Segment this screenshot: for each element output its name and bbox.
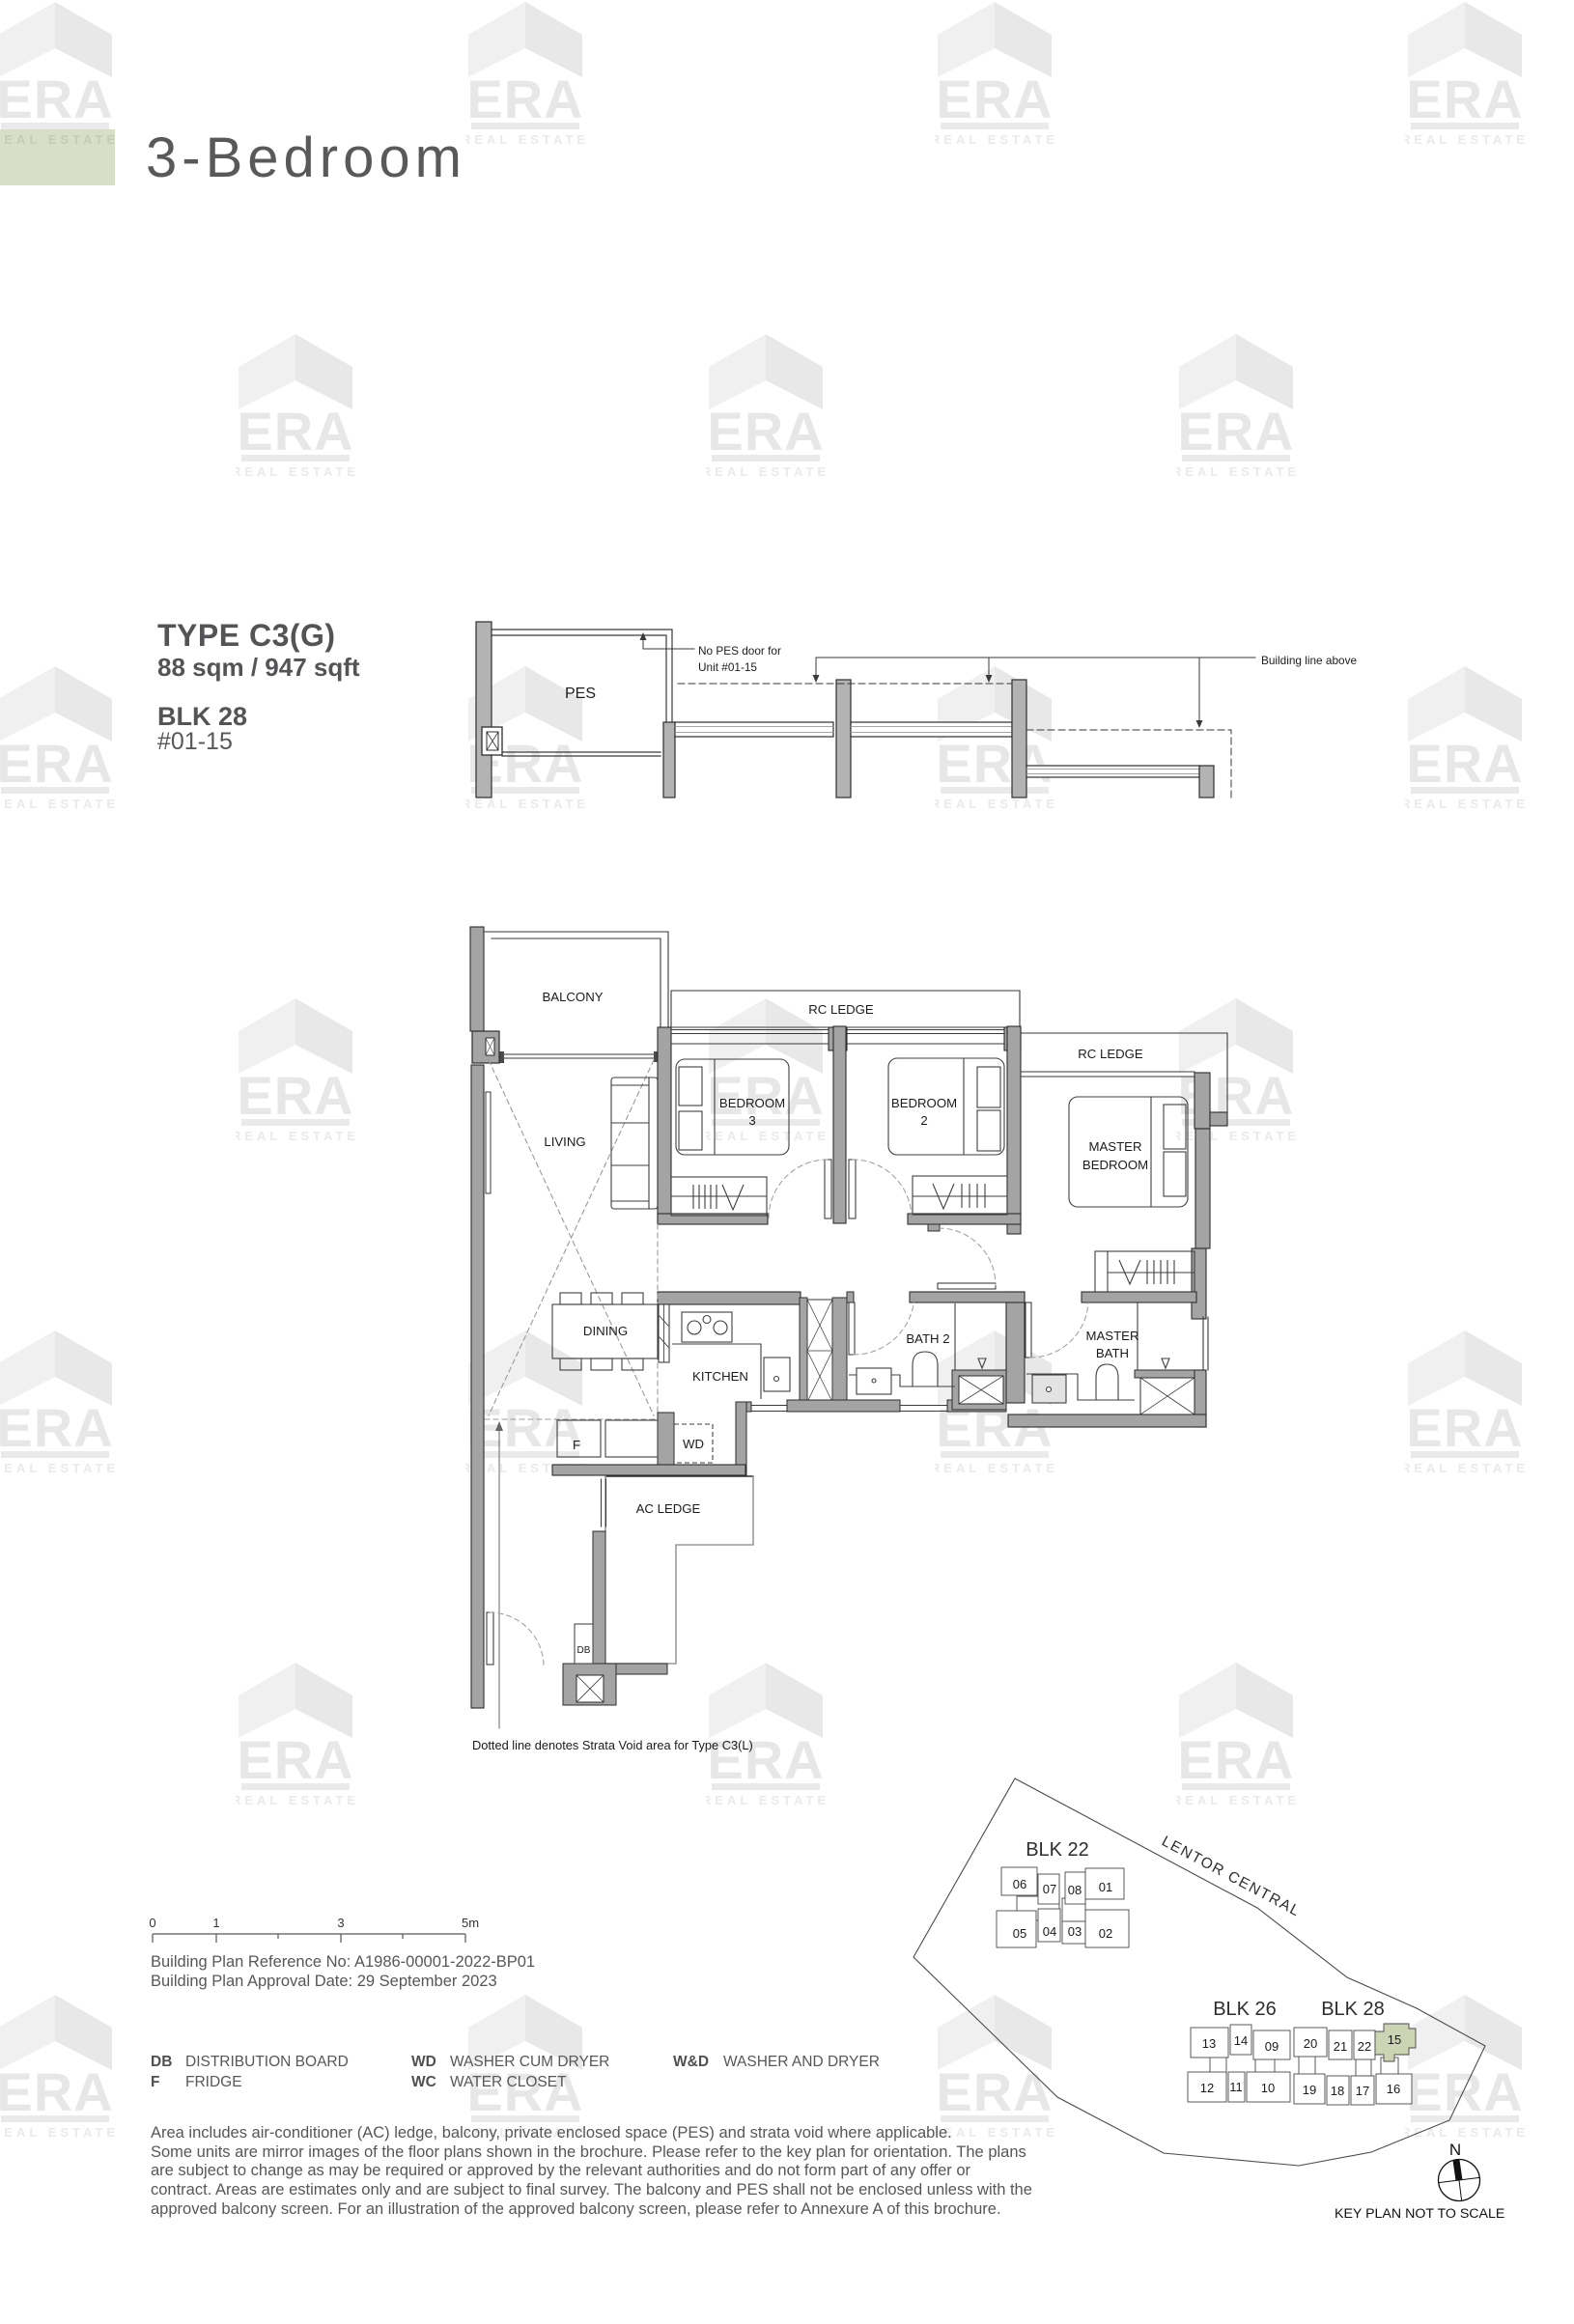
svg-text:RC LEDGE: RC LEDGE: [1078, 1047, 1143, 1061]
svg-text:BEDROOM: BEDROOM: [719, 1096, 785, 1110]
svg-text:BLK 26: BLK 26: [1213, 1999, 1277, 2020]
svg-text:No PES door for: No PES door for: [698, 644, 781, 658]
svg-text:1: 1: [212, 1916, 219, 1930]
svg-text:04: 04: [1043, 1924, 1056, 1939]
svg-text:13: 13: [1202, 2036, 1216, 2051]
svg-text:BALCONY: BALCONY: [542, 990, 603, 1004]
svg-text:15: 15: [1388, 2032, 1401, 2047]
svg-text:AC LEDGE: AC LEDGE: [636, 1501, 701, 1516]
svg-text:BATH 2: BATH 2: [906, 1331, 949, 1346]
svg-text:BLK 22: BLK 22: [1026, 1839, 1089, 1861]
svg-text:19: 19: [1303, 2083, 1316, 2097]
svg-text:WD: WD: [683, 1437, 704, 1451]
svg-text:MASTER: MASTER: [1086, 1329, 1139, 1343]
svg-text:12: 12: [1200, 2081, 1214, 2095]
svg-text:5m: 5m: [462, 1916, 479, 1930]
svg-text:LENTOR CENTRAL: LENTOR CENTRAL: [1159, 1834, 1303, 1920]
svg-text:DB: DB: [577, 1645, 591, 1656]
svg-text:06: 06: [1013, 1877, 1026, 1891]
svg-text:BEDROOM: BEDROOM: [1082, 1158, 1148, 1172]
svg-text:07: 07: [1043, 1882, 1056, 1896]
svg-text:10: 10: [1261, 2081, 1275, 2095]
svg-text:21: 21: [1334, 2039, 1347, 2054]
svg-text:02: 02: [1099, 1926, 1112, 1941]
svg-text:3: 3: [748, 1113, 755, 1128]
svg-text:14: 14: [1234, 2033, 1248, 2048]
svg-text:KEY PLAN NOT TO SCALE: KEY PLAN NOT TO SCALE: [1335, 2206, 1504, 2222]
svg-text:MASTER: MASTER: [1089, 1139, 1142, 1154]
svg-text:BEDROOM: BEDROOM: [891, 1096, 957, 1110]
svg-text:05: 05: [1013, 1926, 1026, 1941]
svg-text:BATH: BATH: [1096, 1346, 1129, 1360]
svg-text:01: 01: [1099, 1880, 1112, 1894]
svg-text:2: 2: [920, 1113, 927, 1128]
svg-text:16: 16: [1387, 2082, 1400, 2096]
svg-text:11: 11: [1229, 2080, 1243, 2094]
svg-text:F: F: [573, 1438, 580, 1452]
svg-text:09: 09: [1265, 2039, 1279, 2054]
svg-text:Building line above: Building line above: [1261, 654, 1357, 667]
svg-text:20: 20: [1304, 2036, 1317, 2051]
svg-text:RC LEDGE: RC LEDGE: [808, 1002, 874, 1017]
svg-text:17: 17: [1356, 2084, 1369, 2098]
svg-text:LIVING: LIVING: [544, 1134, 585, 1149]
svg-text:22: 22: [1358, 2039, 1371, 2054]
svg-text:PES: PES: [565, 686, 596, 702]
svg-text:Unit #01-15: Unit #01-15: [698, 660, 757, 674]
svg-text:03: 03: [1068, 1924, 1082, 1939]
svg-text:0: 0: [149, 1916, 155, 1930]
svg-text:08: 08: [1068, 1883, 1082, 1897]
svg-text:N: N: [1449, 2141, 1461, 2159]
svg-text:DINING: DINING: [583, 1324, 628, 1338]
svg-text:18: 18: [1331, 2084, 1344, 2098]
svg-text:Dotted line denotes Strata Voi: Dotted line denotes Strata Void area for…: [472, 1738, 753, 1752]
svg-text:BLK 28: BLK 28: [1321, 1999, 1385, 2020]
svg-text:KITCHEN: KITCHEN: [692, 1369, 748, 1384]
svg-text:3: 3: [337, 1916, 344, 1930]
